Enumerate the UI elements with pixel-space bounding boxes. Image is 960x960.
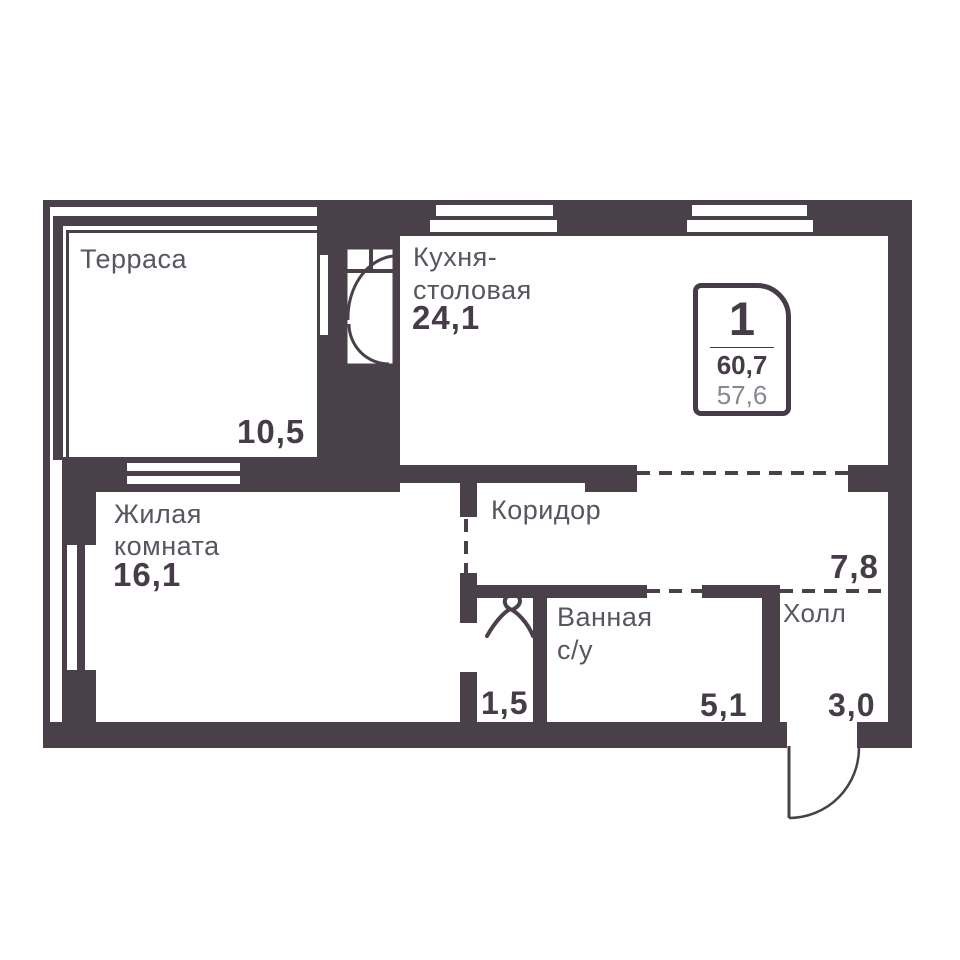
room-area-hall: 7,8: [830, 550, 879, 583]
opening-hall-entry: [780, 589, 888, 593]
wall-hall-block: [702, 585, 780, 598]
terrace-outer-line-top: [43, 200, 322, 207]
room-area-living: 16,1: [113, 558, 181, 591]
room-label-living-line1: Жилая: [114, 501, 202, 528]
room-label-hall: Холл: [783, 600, 846, 626]
wall-bottom-right: [857, 722, 912, 748]
room-area-wardrobe: 1,5: [481, 687, 528, 719]
room-area-terrace: 10,5: [237, 415, 305, 448]
window-terrace-living-icon: [127, 476, 240, 484]
window-kitchen-2-icon: [687, 220, 813, 232]
apartment-info-badge: 1 60,7 57,6: [693, 283, 791, 416]
terrace-inner-line-top: [66, 230, 317, 233]
window-terrace-living-icon: [127, 463, 240, 471]
window-kitchen-1-icon: [436, 205, 553, 216]
terrace-wall-top: [53, 216, 317, 226]
wall-terrace-kitchen-block: [317, 236, 400, 492]
coat-hanger-icon: [487, 595, 533, 636]
wall-stub-hall: [848, 465, 888, 492]
window-living-icon: [85, 545, 96, 670]
wall-corridor-top: [400, 465, 637, 483]
wall-stub-corridor: [460, 483, 477, 517]
wall-corridor-top-step: [585, 483, 637, 492]
terrace-side-window-icon: [320, 255, 328, 335]
window-kitchen-2-icon: [692, 205, 807, 216]
opening-living-corridor: [464, 519, 468, 573]
wall-bathroom-right: [762, 598, 780, 722]
wall-top: [317, 200, 912, 236]
wall-wardrobe-left-lower: [460, 672, 477, 722]
room-area-kitchen: 24,1: [412, 301, 480, 334]
terrace-wall-left: [53, 216, 63, 460]
opening-bathroom: [647, 589, 702, 593]
room-label-corridor: Коридор: [491, 497, 601, 524]
window-living-icon: [67, 545, 77, 670]
entrance-door-icon: [789, 746, 859, 818]
opening-corridor-hall: [637, 471, 848, 475]
wall-bottom-left: [43, 722, 787, 748]
room-label-bathroom-line2: с/у: [557, 637, 593, 664]
window-kitchen-1-icon: [430, 220, 557, 232]
terrace-inner-line-left: [66, 230, 69, 460]
room-label-terrace: Терраса: [80, 246, 187, 273]
wall-wardrobe-bathroom: [533, 585, 547, 722]
room-label-kitchen-line1: Кухня-: [413, 244, 497, 271]
terrace-outer-line-left: [43, 200, 50, 748]
badge-rooms-count: 1: [729, 295, 755, 342]
room-area-entry: 3,0: [828, 689, 875, 721]
room-label-bathroom-line1: Ванная: [557, 604, 652, 631]
wall-bathroom-top: [460, 585, 647, 598]
badge-living-area: 57,6: [717, 381, 768, 411]
wall-wardrobe-left-upper: [460, 573, 477, 623]
floor-plan: Терраса 10,5 Кухня- столовая 24,1 Коридо…: [0, 0, 960, 960]
badge-total-area: 60,7: [717, 351, 768, 381]
room-area-bathroom: 5,1: [700, 689, 747, 721]
wall-right: [888, 200, 912, 748]
